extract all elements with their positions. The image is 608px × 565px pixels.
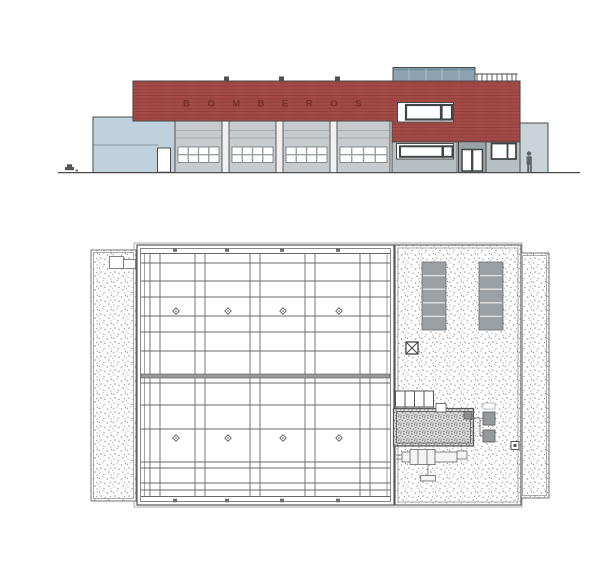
side-door [158,148,171,172]
solar-panel-array [479,262,503,330]
roof-plan [91,243,549,507]
edge-marker [280,499,284,503]
parapet-vent [335,77,340,82]
roof-drain-center [282,437,284,439]
skylight-strip [396,391,434,407]
edge-marker [336,499,340,503]
vent-box-1 [483,412,495,425]
right-volume [520,123,548,173]
vent-box-2 [483,430,495,442]
grid-thick-band [141,374,390,378]
terrace-area [394,404,474,447]
solar-panel-array [422,262,446,330]
architectural-drawing-sheet: BOMBEROS [0,0,608,565]
parapet-vent [224,77,229,82]
ground-object [65,164,78,171]
edge-marker [225,248,229,252]
lower-window-pane-small [443,146,453,157]
edge-drain-box [511,442,519,450]
right-gravel-strip [520,253,549,498]
roof-railing-posts [477,74,516,82]
left-strip-box-1 [110,257,124,269]
equipment-t-foot [421,476,436,482]
entry-side-window [492,144,517,160]
edge-marker [280,248,284,252]
facade-sign: BOMBEROS [183,99,379,110]
roof-drain-center [282,310,284,312]
parapet-vent [279,77,284,82]
terrace-top-box [436,404,446,413]
lower-window-pane-large [400,146,443,157]
roof-drain-center [227,437,229,439]
entrance-door-leaf-right [473,150,483,172]
roof-drain-center [227,310,229,312]
edge-marker [336,248,340,252]
edge-marker [173,248,177,252]
vent-cap [483,403,495,409]
roof-hatch [406,342,418,354]
left-gravel-strip [91,250,136,501]
entrance-door-leaf-left [462,150,472,172]
entrance-door [459,142,487,173]
edge-marker [225,499,229,503]
terrace-corner-box [464,412,472,420]
upper-window-pane-small [442,105,453,120]
left-strip-box-2 [124,260,136,269]
roof-drain-center [175,310,177,312]
main-roof-section [137,245,394,505]
roof-drain-center [338,437,340,439]
edge-marker [173,499,177,503]
lower-window-band [397,144,454,160]
gravel-roof-section [394,245,522,505]
upper-window-pane-large [406,105,441,120]
roof-drain-center [175,437,177,439]
roof-drain-center [338,310,340,312]
front-elevation: BOMBEROS [58,68,580,173]
upper-window-band [398,103,454,123]
